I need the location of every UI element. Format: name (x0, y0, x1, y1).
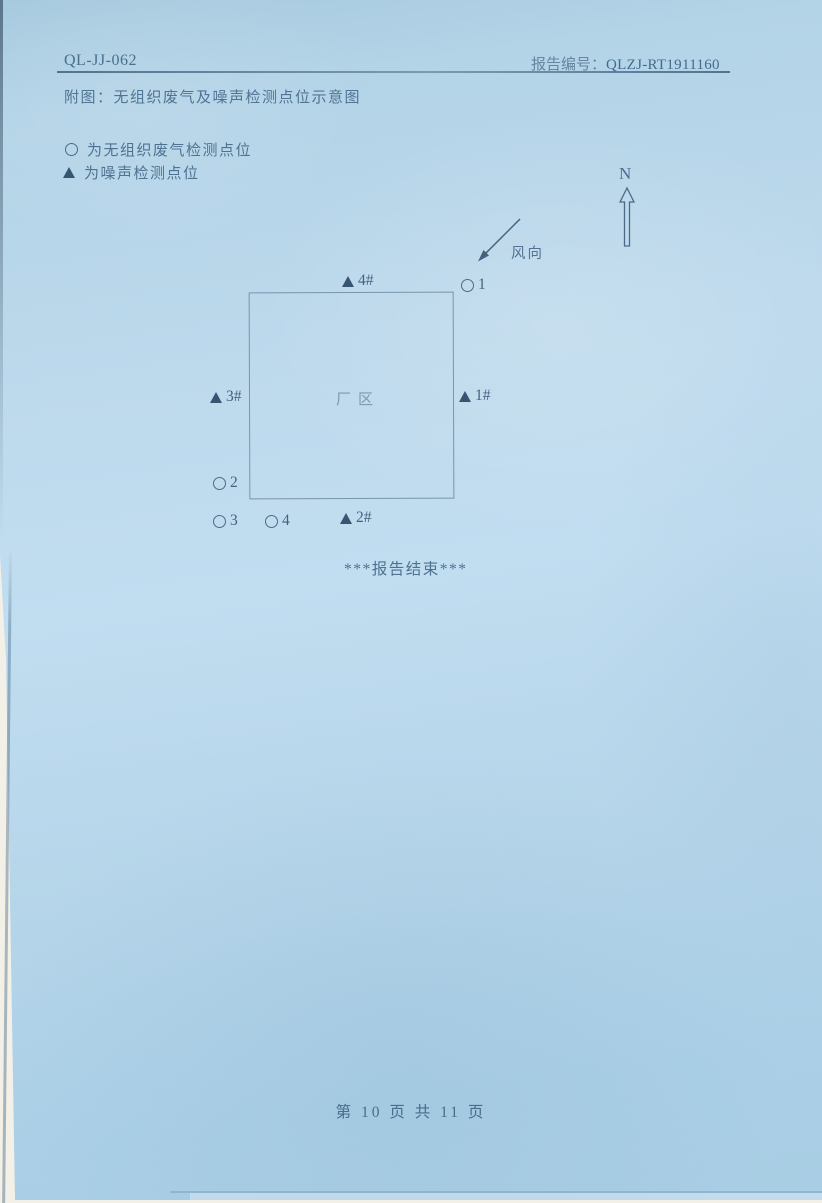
gas-point-3: 3 (213, 512, 238, 530)
circle-marker-icon (213, 515, 226, 528)
header-rule (57, 71, 730, 73)
figure-caption: 附图：无组织废气及噪声检测点位示意图 (64, 86, 361, 107)
noise-point-1: 1# (459, 387, 491, 405)
end-of-report-text: ***报告结束*** (344, 557, 468, 579)
document-code: QL-JJ-062 (64, 52, 137, 70)
triangle-marker-icon (342, 276, 354, 287)
north-label: N (619, 164, 632, 184)
point-label: 1 (478, 276, 486, 294)
triangle-marker-icon (459, 391, 471, 402)
noise-point-4: 4# (342, 272, 374, 290)
circle-marker-icon (461, 279, 474, 292)
legend-label-gas: 为无组织废气检测点位 (87, 139, 252, 160)
triangle-marker-icon (210, 392, 222, 403)
noise-point-2: 2# (340, 509, 372, 527)
point-label: 3 (230, 512, 238, 530)
triangle-marker-icon (340, 513, 352, 524)
paper-bottom-edge-highlight (190, 1193, 822, 1200)
point-label: 3# (226, 388, 242, 406)
factory-area-label: 厂区 (336, 388, 380, 409)
paper-left-edge-shadow (0, 0, 3, 540)
gas-point-4: 4 (265, 512, 290, 530)
noise-point-3: 3# (210, 388, 242, 406)
wind-direction-label: 风向 (511, 242, 544, 263)
point-label: 2 (230, 474, 238, 492)
gas-point-2: 2 (213, 474, 238, 492)
circle-marker-icon (265, 515, 278, 528)
point-label: 4 (282, 512, 290, 530)
point-label: 4# (358, 272, 374, 290)
circle-marker-icon (213, 477, 226, 490)
legend-label-noise: 为噪声检测点位 (84, 162, 200, 183)
legend-item-noise: 为噪声检测点位 (63, 162, 200, 183)
point-label: 1# (475, 387, 491, 405)
point-label: 2# (356, 509, 372, 527)
north-arrow-icon (614, 186, 640, 250)
triangle-marker-icon (63, 167, 75, 178)
page-number-footer: 第 10 页 共 11 页 (0, 1100, 822, 1122)
gas-point-1: 1 (461, 276, 486, 294)
circle-marker-icon (65, 143, 78, 156)
legend-item-gas: 为无组织废气检测点位 (65, 139, 252, 160)
scanned-page: QL-JJ-062 报告编号：QLZJ-RT1911160 附图：无组织废气及噪… (0, 0, 822, 1200)
